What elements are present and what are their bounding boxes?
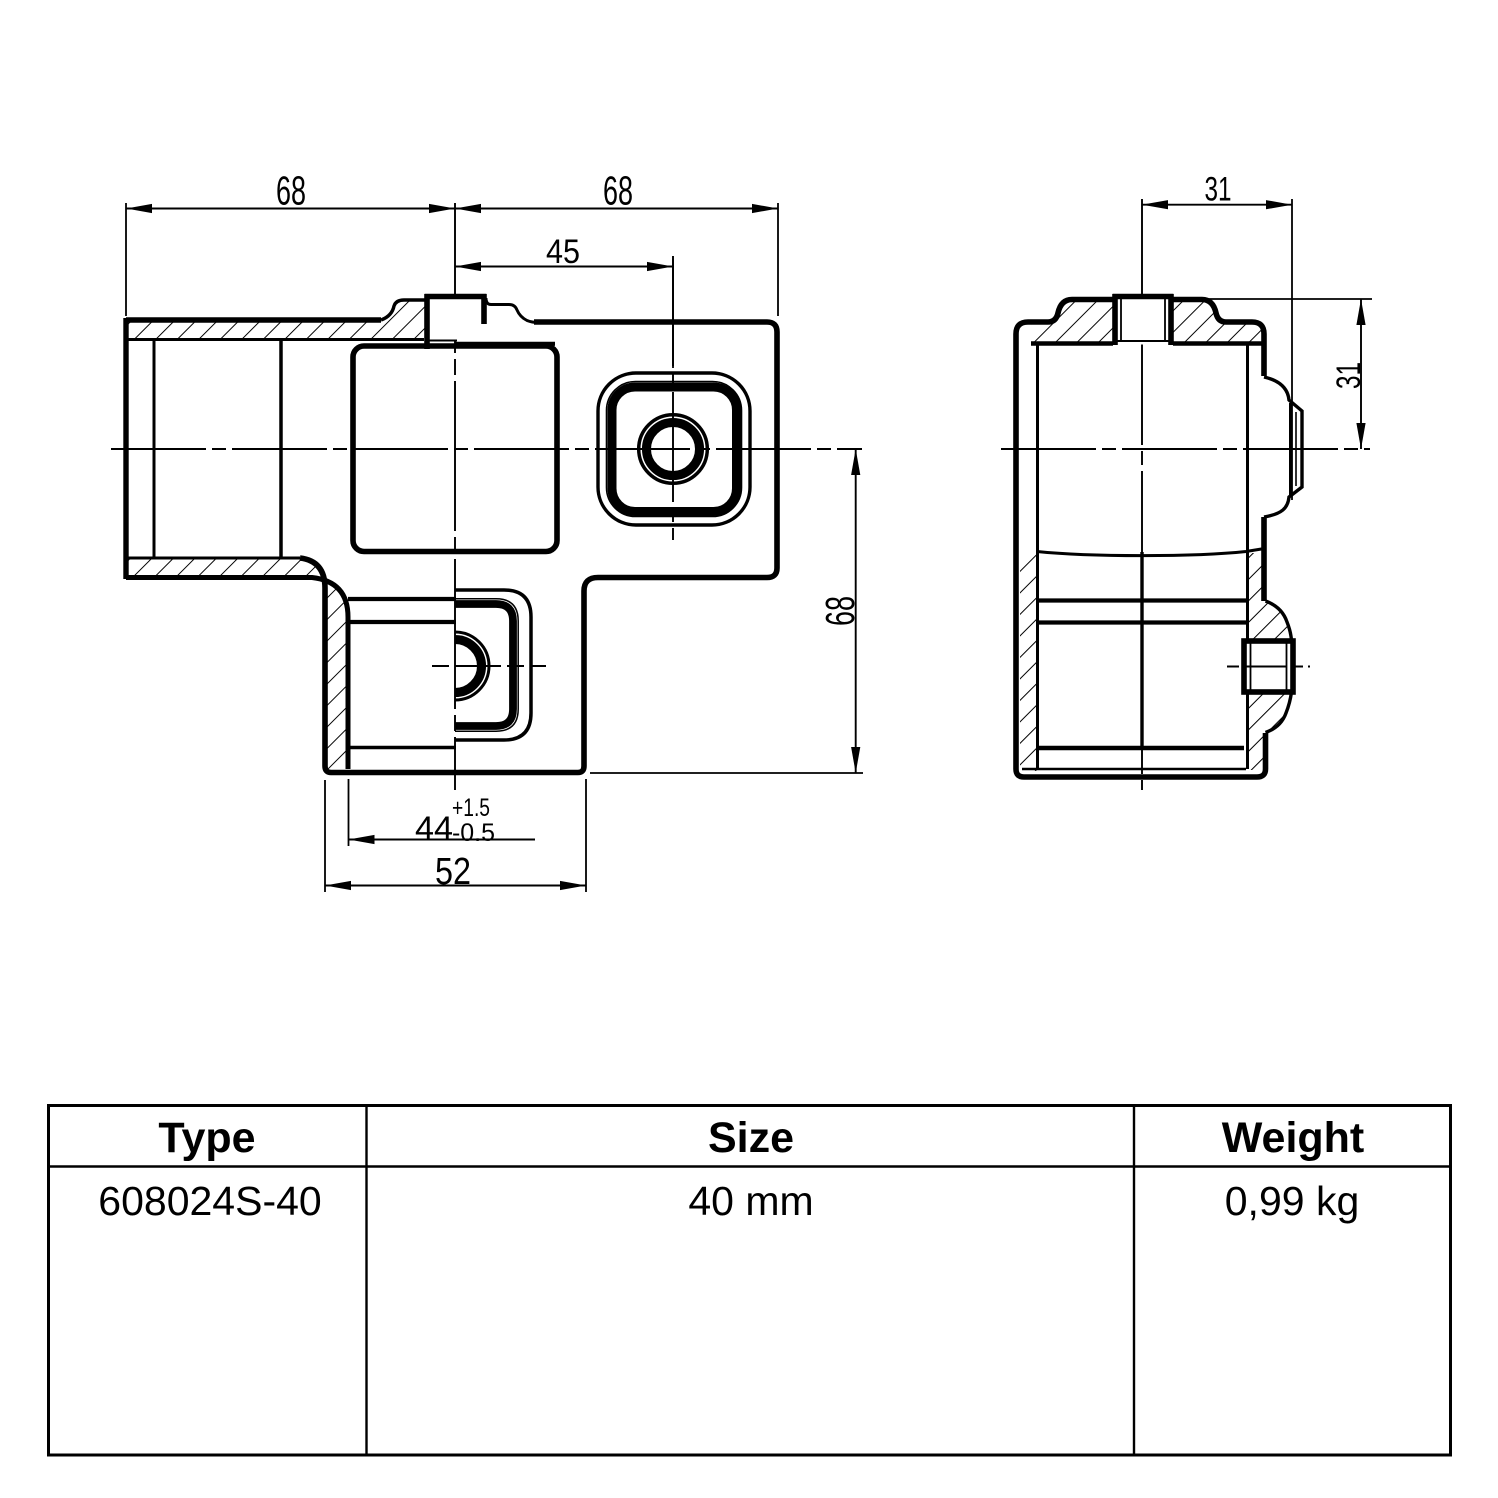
svg-text:44: 44 [415, 810, 453, 848]
svg-text:-0.5: -0.5 [452, 819, 495, 847]
svg-text:31: 31 [1205, 171, 1232, 209]
svg-text:31: 31 [1330, 362, 1368, 389]
svg-text:608024S-40: 608024S-40 [98, 1178, 321, 1224]
svg-text:Size: Size [708, 1114, 794, 1162]
svg-text:0,99 kg: 0,99 kg [1225, 1178, 1360, 1224]
svg-text:40 mm: 40 mm [688, 1178, 813, 1224]
svg-text:68: 68 [603, 168, 633, 214]
svg-text:45: 45 [546, 233, 580, 271]
svg-text:68: 68 [276, 168, 306, 214]
svg-text:Weight: Weight [1222, 1114, 1365, 1162]
svg-text:52: 52 [435, 851, 471, 893]
svg-text:68: 68 [817, 596, 863, 626]
svg-text:Type: Type [158, 1114, 255, 1162]
svg-text:+1.5: +1.5 [452, 794, 490, 822]
